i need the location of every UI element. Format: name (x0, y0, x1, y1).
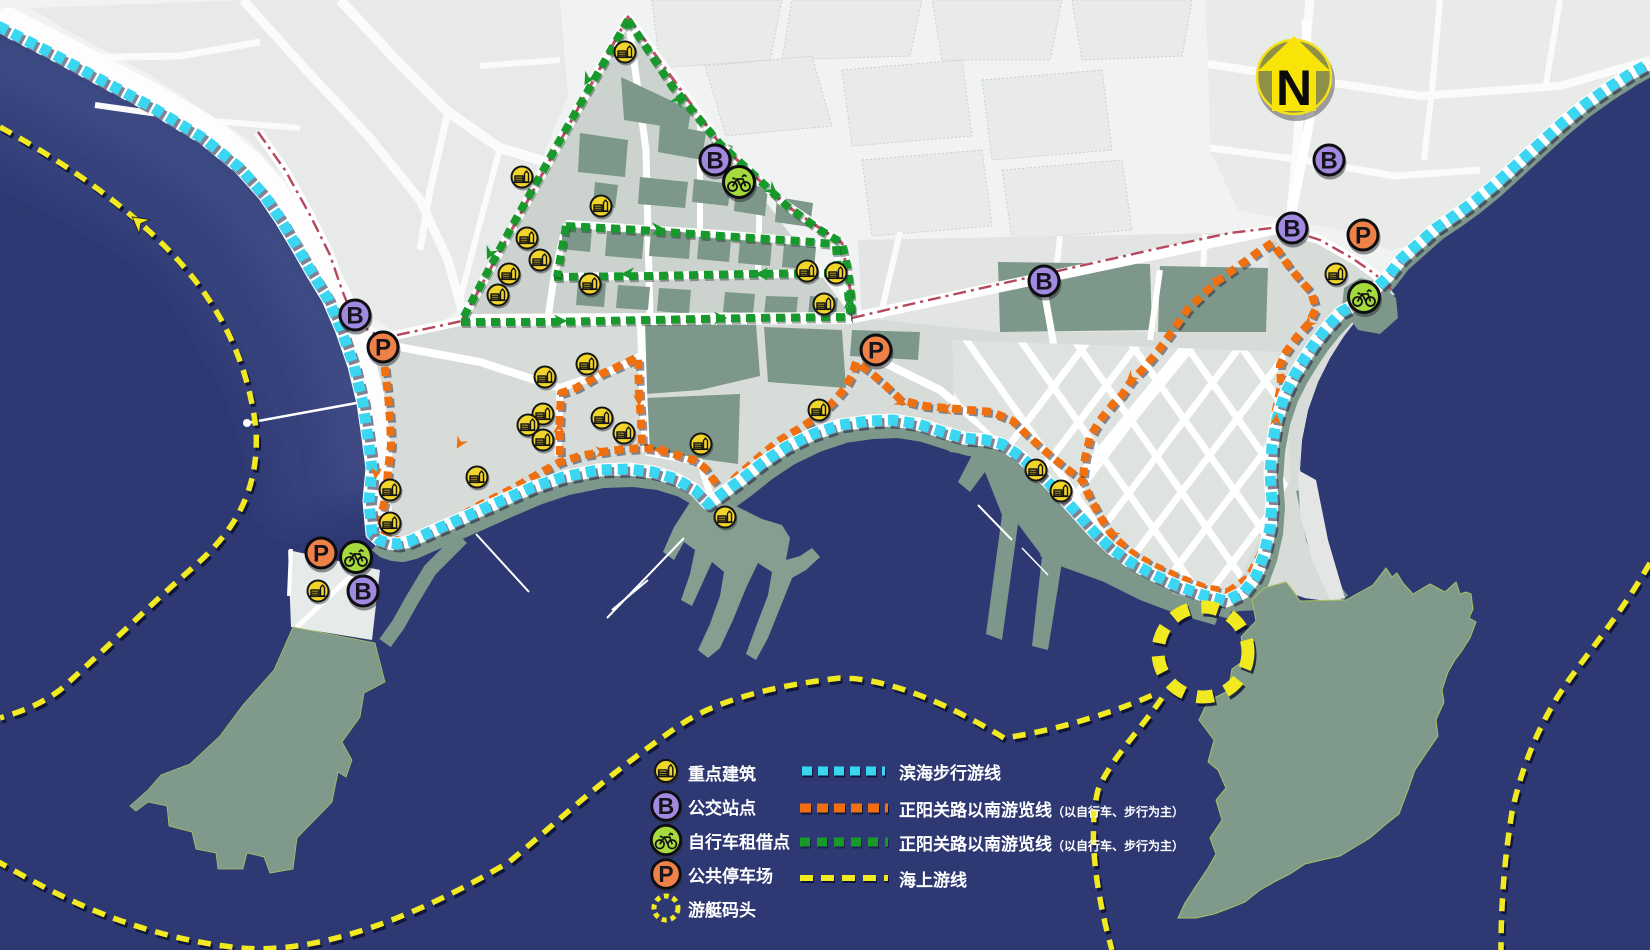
svg-text:P: P (868, 338, 884, 365)
svg-text:B: B (1283, 216, 1300, 243)
svg-text:P: P (658, 861, 673, 887)
svg-text:P: P (313, 541, 329, 568)
svg-text:公交站点: 公交站点 (688, 798, 756, 818)
svg-text:B: B (1320, 148, 1337, 175)
svg-text:B: B (1035, 269, 1052, 296)
svg-text:P: P (375, 335, 391, 362)
svg-text:公共停车场: 公共停车场 (688, 866, 773, 886)
svg-text:N: N (1276, 60, 1312, 116)
svg-text:重点建筑: 重点建筑 (688, 764, 756, 784)
svg-text:B: B (658, 793, 674, 819)
svg-text:B: B (346, 303, 363, 330)
svg-text:滨海步行游线: 滨海步行游线 (899, 763, 1001, 783)
svg-text:海上游线: 海上游线 (899, 870, 967, 890)
svg-text:B: B (706, 148, 723, 175)
svg-text:P: P (1355, 223, 1371, 250)
svg-text:B: B (354, 579, 371, 606)
svg-text:游艇码头: 游艇码头 (688, 900, 756, 920)
svg-text:自行车租借点: 自行车租借点 (688, 832, 790, 852)
